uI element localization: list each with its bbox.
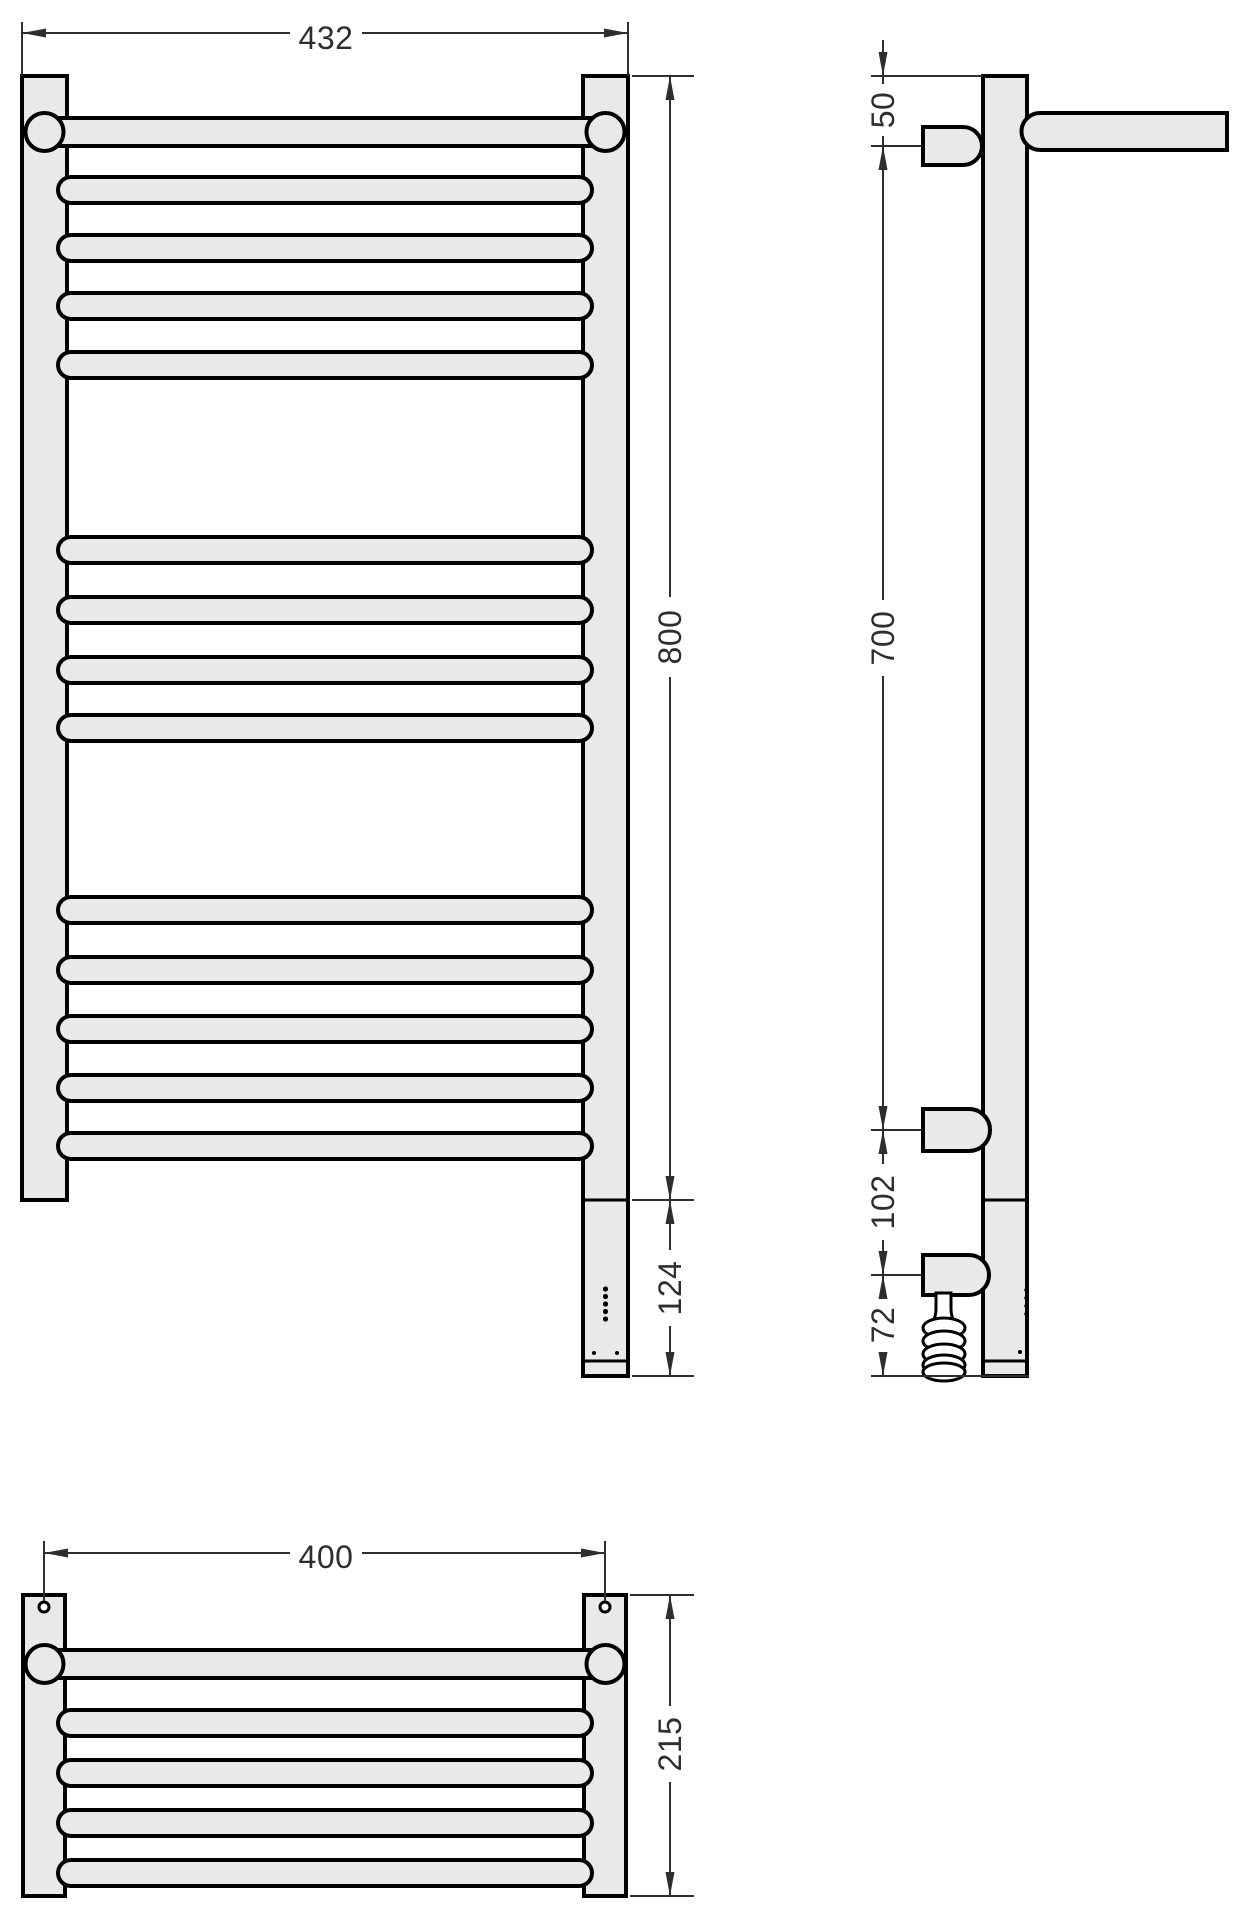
arrowhead: [666, 1176, 675, 1200]
top-bar-left-union: [26, 113, 64, 151]
side-extension-lines: [871, 76, 983, 1275]
plan-right-bracket: [584, 1595, 626, 1896]
plan-top-bar: [44, 1650, 605, 1678]
dim-label-400: 400: [299, 1539, 354, 1575]
arrowhead: [666, 1200, 675, 1224]
plan-view: 400 215: [23, 1539, 694, 1896]
front-rungs: [58, 177, 592, 1159]
screw-dot: [1018, 1350, 1022, 1354]
arrowhead: [666, 1872, 675, 1896]
rung: [58, 1810, 592, 1836]
rung: [58, 957, 592, 983]
rung: [58, 1760, 592, 1786]
mounting-hole: [39, 1602, 49, 1612]
rung: [58, 177, 592, 203]
drawing-sheet: 432 800 124: [0, 0, 1246, 1920]
rung: [58, 597, 592, 623]
screw-dot: [592, 1351, 596, 1355]
dim-heater-124: 124: [632, 1200, 694, 1376]
dim-label-72: 72: [865, 1307, 901, 1344]
side-post: [983, 76, 1027, 1376]
rung: [58, 1860, 592, 1886]
arrowhead: [879, 1352, 888, 1376]
arrowhead: [879, 52, 888, 76]
side-top-rail-union: [923, 127, 982, 165]
rung: [58, 1075, 592, 1101]
arrowhead: [666, 76, 675, 100]
dim-height-800: 800: [632, 76, 694, 1200]
rung: [58, 657, 592, 683]
dim-label-700: 700: [865, 611, 901, 666]
top-bar-right-union: [587, 113, 625, 151]
dim-label-50: 50: [865, 92, 901, 129]
dim-mount-400: 400: [44, 1539, 605, 1601]
dim-depth-215: 215: [630, 1595, 694, 1896]
rung: [58, 293, 592, 319]
arrowhead: [44, 1549, 68, 1558]
dim-width-432: 432: [22, 20, 628, 76]
arrowhead: [879, 1251, 888, 1275]
front-view: 432 800 124: [22, 20, 694, 1376]
plan-rungs: [58, 1710, 592, 1886]
arrowhead: [581, 1549, 605, 1558]
dim-label-215: 215: [652, 1717, 688, 1772]
arrowhead: [879, 1106, 888, 1130]
wall-bracket-bar: [1022, 113, 1228, 150]
dim-label-102: 102: [865, 1175, 901, 1230]
dim-label-800: 800: [652, 610, 688, 665]
dim-label-432: 432: [299, 20, 354, 56]
plan-left-bracket: [23, 1595, 65, 1896]
rung: [58, 715, 592, 741]
plan-bar-right-union: [587, 1645, 625, 1683]
top-bar: [44, 118, 605, 146]
rung: [58, 352, 592, 378]
arrowhead: [666, 1352, 675, 1376]
arrowhead: [22, 29, 46, 38]
arrowhead: [666, 1595, 675, 1619]
rung: [58, 537, 592, 563]
towel-rail-technical-drawing: 432 800 124: [0, 0, 1246, 1920]
rung: [58, 1016, 592, 1042]
side-view: 50 700 102 72: [865, 40, 1227, 1381]
rung: [58, 235, 592, 261]
rung: [58, 1133, 592, 1159]
rung: [58, 1710, 592, 1736]
plan-bar-left-union: [26, 1645, 64, 1683]
arrowhead: [879, 1130, 888, 1154]
arrowhead: [604, 29, 628, 38]
arrowhead: [879, 1275, 888, 1299]
screw-dot: [615, 1351, 619, 1355]
mounting-hole: [600, 1602, 610, 1612]
dim-label-124: 124: [652, 1261, 688, 1316]
side-heater-union: [923, 1255, 989, 1295]
side-lower-rail-union: [923, 1109, 990, 1151]
arrowhead: [879, 146, 888, 170]
power-cable-coil: [923, 1293, 965, 1381]
rung: [58, 897, 592, 923]
